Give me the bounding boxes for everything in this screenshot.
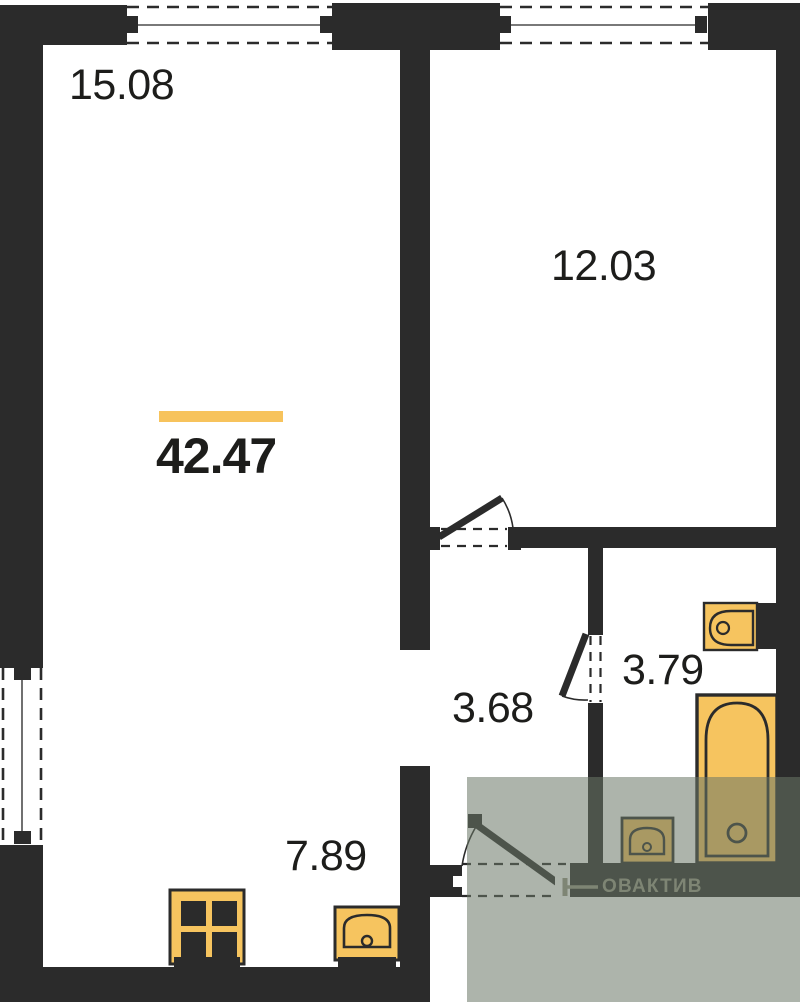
window-top-right xyxy=(499,7,708,43)
wall-livingroom-lower xyxy=(400,766,430,1002)
total-area-highlight-bar xyxy=(159,411,283,422)
toilet-icon xyxy=(704,603,776,650)
stove-icon xyxy=(170,890,244,967)
area-label-room-top-left: 15.08 xyxy=(69,64,174,107)
total-area-label: 42.47 xyxy=(156,431,276,481)
area-label-room-top-right: 12.03 xyxy=(551,245,656,288)
wall-bottom xyxy=(0,967,430,1002)
wall-bath-upper xyxy=(588,546,603,635)
wall-top-middle xyxy=(332,3,500,50)
area-label-hallway: 3.68 xyxy=(452,687,534,730)
door-frame-cap xyxy=(427,527,440,550)
wall-hall-top xyxy=(520,527,776,548)
door-swing-bathroom xyxy=(562,634,601,702)
watermark-logo-icon xyxy=(561,876,599,898)
watermark-text: ОВАКТИВ xyxy=(602,876,703,898)
area-label-bathroom: 3.79 xyxy=(622,649,704,692)
wall-right xyxy=(776,3,800,897)
door-swing-room xyxy=(439,498,513,546)
kitchen-sink-icon xyxy=(335,907,399,967)
door-frame-cap xyxy=(508,527,521,550)
wall-left-upper xyxy=(0,5,43,668)
window-top-left xyxy=(126,7,332,43)
wall-livingroom-upper xyxy=(400,48,430,650)
floor-plan: 15.08 12.03 42.47 3.68 3.79 7.89 ОВАКТИВ xyxy=(0,0,800,1002)
area-label-kitchen: 7.89 xyxy=(285,835,367,878)
window-left xyxy=(3,667,41,845)
watermark: ОВАКТИВ xyxy=(561,876,703,898)
